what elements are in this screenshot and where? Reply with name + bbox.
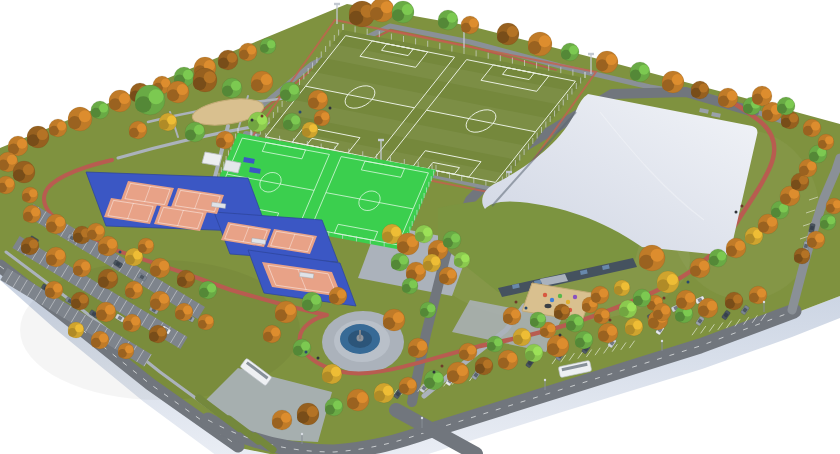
tree-canopy-light [301,342,310,351]
tree-canopy-light [727,91,737,101]
tree-canopy-light [271,328,280,337]
tree-canopy-light [159,294,169,304]
tree [820,214,836,230]
tree-canopy-light [149,89,164,104]
tree [454,252,470,268]
tree [159,113,177,131]
tree [625,318,643,336]
tree [803,119,821,137]
tree [818,134,834,150]
tree [150,291,170,311]
tree-canopy-light [651,249,664,262]
person [663,297,666,300]
tree-canopy-light [785,100,794,109]
tree [575,331,593,349]
tree [525,344,543,362]
tree-canopy-light [307,406,318,417]
tree-canopy-light [99,334,108,343]
tree-canopy-light [469,19,478,28]
tree [218,50,238,70]
tree [633,289,651,307]
tree [461,16,479,34]
tree [402,278,418,294]
tree [752,86,772,106]
tree-canopy-light [427,304,435,312]
tree-canopy-light [31,208,40,217]
tree-canopy-light [247,46,256,55]
tree-canopy-light [735,241,745,251]
tree-canopy-light [125,345,133,353]
tree-canopy-light [507,353,517,363]
tree-canopy-light [289,85,299,95]
tree [91,331,109,349]
tree-canopy-light [533,347,542,356]
tree-canopy-light [521,331,530,340]
tree-canopy-light [494,338,502,346]
tree-canopy-light [423,228,432,237]
tree [98,269,118,289]
tree [193,68,217,92]
tree [251,71,273,93]
tree [135,85,165,115]
tree-canopy-light [205,316,213,324]
tree [794,248,810,264]
tree [68,322,84,338]
person [317,357,320,360]
tree [408,338,428,358]
tree [374,383,394,403]
tree [308,90,328,110]
tree [415,225,433,243]
tree [513,328,531,346]
lamp-head [544,379,546,381]
tree [498,350,518,370]
person [329,107,332,110]
tree-canopy-light [417,341,427,351]
tree-canopy-light [285,304,296,315]
tree-canopy-light [815,234,824,243]
tree [272,410,292,430]
tree [45,281,63,299]
render-canvas: Aerial 3D visualization of a sports comp… [0,0,840,454]
tree-canopy-light [321,112,329,120]
person [261,115,264,118]
tree [657,271,679,293]
lamp-head [763,301,765,303]
person [609,319,612,322]
tree [118,343,134,359]
tree-canopy-light [309,124,317,132]
tree-canopy-light [761,89,771,99]
tree [109,90,131,112]
tree [68,107,92,131]
tree [177,270,195,288]
tree-canopy-light [391,227,401,237]
tree [554,304,570,320]
person [515,301,518,304]
tree-canopy-light [57,122,66,131]
tree-canopy-light [37,129,48,140]
tree [293,339,311,357]
tree-canopy-light [467,346,476,355]
tree-canopy-light [17,139,27,149]
tree-canopy-light [537,314,545,322]
tree [71,292,89,310]
tree-canopy-light [707,301,717,311]
tree [391,253,409,271]
tree-canopy-light [167,116,176,125]
tree-canopy-light [569,46,578,55]
tree-canopy-light [99,104,108,113]
person [305,351,308,354]
person [559,334,562,337]
tree [263,325,281,343]
tree [347,389,369,411]
tree [123,314,141,332]
tree-canopy-light [667,274,678,285]
tree-canopy-light [801,250,809,258]
tree-canopy-light [639,65,649,75]
tree-canopy-light [383,386,393,396]
tree-canopy-light [757,289,766,298]
tree-canopy-light [137,124,146,133]
tree-canopy-light [685,293,695,303]
tree-canopy-light [29,189,37,197]
tree-canopy-light [507,26,518,37]
tree [530,312,546,328]
tree [199,281,217,299]
tree-canopy-light [407,380,416,389]
tree [13,161,35,183]
tree-canopy-light [79,110,91,122]
tree [547,335,569,357]
tree-canopy-light [81,262,90,271]
tree [138,238,154,254]
tree-canopy-light [291,116,300,125]
tree [27,126,49,148]
tree [807,231,825,249]
tree [49,119,67,137]
tree [129,121,147,139]
fountain-sculpture-arm [359,330,361,339]
tree [447,362,469,384]
tree [439,267,457,285]
play-equipment [558,294,562,298]
tree [443,231,461,249]
tree-canopy-light [145,240,153,248]
tree [322,364,342,384]
tree-canopy-light [393,312,404,323]
tree-canopy-light [281,413,291,423]
tree [248,112,268,132]
tree-canopy-light [55,217,65,227]
tree-canopy-light [767,217,777,227]
tree-canopy-light [447,270,456,279]
sports-complex-render: Aerial 3D visualization of a sports comp… [0,0,840,454]
tree-canopy-light [337,290,346,299]
tree-canopy-light [717,252,726,261]
tree-canopy-light [511,310,520,319]
tree-canopy-light [357,392,368,403]
tree-canopy-light [317,93,327,103]
tree [297,403,319,425]
tree-canopy-light [827,216,835,224]
tree-canopy-light [483,360,492,369]
tree-canopy-light [159,261,169,271]
tree-canopy-light [7,155,17,165]
person [687,281,690,284]
tree [596,51,618,73]
person [441,365,444,368]
tree-canopy-light [431,257,440,266]
tree [497,23,519,45]
tree-canopy-light [133,284,142,293]
tree [423,254,441,272]
tree-canopy-light [105,305,115,315]
person [433,371,436,374]
tree-canopy-light [557,338,568,349]
tree-canopy-light [131,317,140,326]
tree-canopy-light [107,272,117,282]
play-equipment [550,298,554,302]
tree [185,122,205,142]
tree-canopy-light [539,35,551,47]
tree [23,205,41,223]
tree [438,10,458,30]
person [525,307,528,310]
tree [216,131,234,149]
tree [314,110,330,126]
tree [260,38,276,54]
tree [726,238,746,258]
tree-canopy-light [733,295,742,304]
tree [662,71,684,93]
tree-canopy-light [599,289,608,298]
tree-canopy-light [461,254,469,262]
tree [73,259,91,277]
tree [383,309,405,331]
tree [275,301,297,323]
tree [528,32,552,56]
tree-canopy-light [185,273,194,282]
tree [149,325,167,343]
tree-canopy-light [607,326,617,336]
tree-canopy-light [29,240,38,249]
tree-canopy-light [194,125,204,135]
tree [420,302,436,318]
tree [698,298,718,318]
tree [91,101,109,119]
tree [594,308,610,324]
tree [222,78,242,98]
tree-canopy-light [204,71,216,83]
tree-canopy-light [402,4,413,15]
tree-canopy-light [157,328,166,337]
tree-canopy-light [227,53,237,63]
tree [198,314,214,330]
tree-canopy-light [606,54,617,65]
tree-canopy-light [633,321,642,330]
play-equipment [543,293,547,297]
tree-canopy-light [267,40,275,48]
tree [239,43,257,61]
person [299,111,302,114]
tree-canopy-light [789,114,798,123]
person [251,119,254,122]
tree-canopy-light [55,250,65,260]
person [735,211,738,214]
tree [487,336,503,352]
tree [399,377,417,395]
tree [591,286,609,304]
tree [598,323,618,343]
tree-canopy-light [621,282,629,290]
tree-canopy-light [5,179,14,188]
tree-canopy-light [119,93,130,104]
tree [167,81,189,103]
tree-canopy-light [23,164,34,175]
tree [777,97,795,115]
tree-canopy-light [207,284,216,293]
tree-canopy-light [381,1,393,13]
tree-canopy-light [825,136,833,144]
lamp-head [661,340,663,342]
play-equipment [573,295,577,299]
tree [21,237,39,255]
tree-canopy-light [574,317,583,326]
tree [561,43,579,61]
tree [725,292,743,310]
person [119,251,122,254]
tree-canopy-light [601,310,609,318]
tree-canopy-light [399,256,408,265]
tree [503,307,521,325]
tree-canopy-light [95,226,104,235]
park-pavilion-1 [202,152,222,166]
tree [302,122,318,138]
lamp-head [421,417,423,419]
tree-canopy-light [75,324,83,332]
tree [0,176,15,194]
tree-canopy-light [583,334,592,343]
tree [690,258,710,278]
fountain [340,324,380,354]
tree [46,247,66,267]
tree-canopy-light [331,367,341,377]
tree [280,82,300,102]
tree [302,292,322,312]
tree [826,198,840,214]
tree [459,343,477,361]
tree-canopy-light [547,324,555,332]
tree [46,214,66,234]
tree-canopy-light [699,261,709,271]
tree-canopy-light [811,122,820,131]
tree-canopy-light [447,13,457,23]
tree [87,223,105,241]
tree-canopy-light [177,84,188,95]
tree [614,280,630,296]
tree-canopy-light [807,162,816,171]
tree [125,281,143,299]
tree-canopy-light [183,306,192,315]
tree-canopy-light [224,134,233,143]
tree-canopy-light [333,401,342,410]
tree-canopy-light [409,280,417,288]
tree-canopy-light [672,74,683,85]
tree-canopy-light [261,74,272,85]
tree-canopy-light [433,373,443,383]
tree-canopy-light [699,84,708,93]
tree-canopy-light [661,306,670,315]
person [741,205,744,208]
tree-canopy-light [183,70,193,80]
tree [22,187,38,203]
tree [630,62,650,82]
tree [709,249,727,267]
tree [676,290,696,310]
tree [653,303,671,321]
tree [691,81,709,99]
play-structure [545,304,552,308]
tree [175,303,193,321]
tree [325,398,343,416]
tree-canopy-light [311,295,321,305]
lamp-head [301,433,303,435]
tree-canopy-light [561,306,569,314]
tree [96,302,116,322]
tree [475,357,493,375]
tree-canopy-light [641,292,650,301]
tree-canopy-light [79,295,88,304]
tree [329,287,347,305]
tree-canopy-light [231,81,241,91]
tree [392,1,414,23]
tree-canopy-light [53,284,62,293]
tree-canopy-light [451,234,460,243]
tree-canopy-light [107,239,117,249]
play-equipment [566,300,570,304]
tree [283,113,301,131]
tree [718,88,738,108]
tree-canopy-light [457,365,468,376]
tree [150,258,170,278]
tree [639,245,665,271]
tree [370,0,394,22]
